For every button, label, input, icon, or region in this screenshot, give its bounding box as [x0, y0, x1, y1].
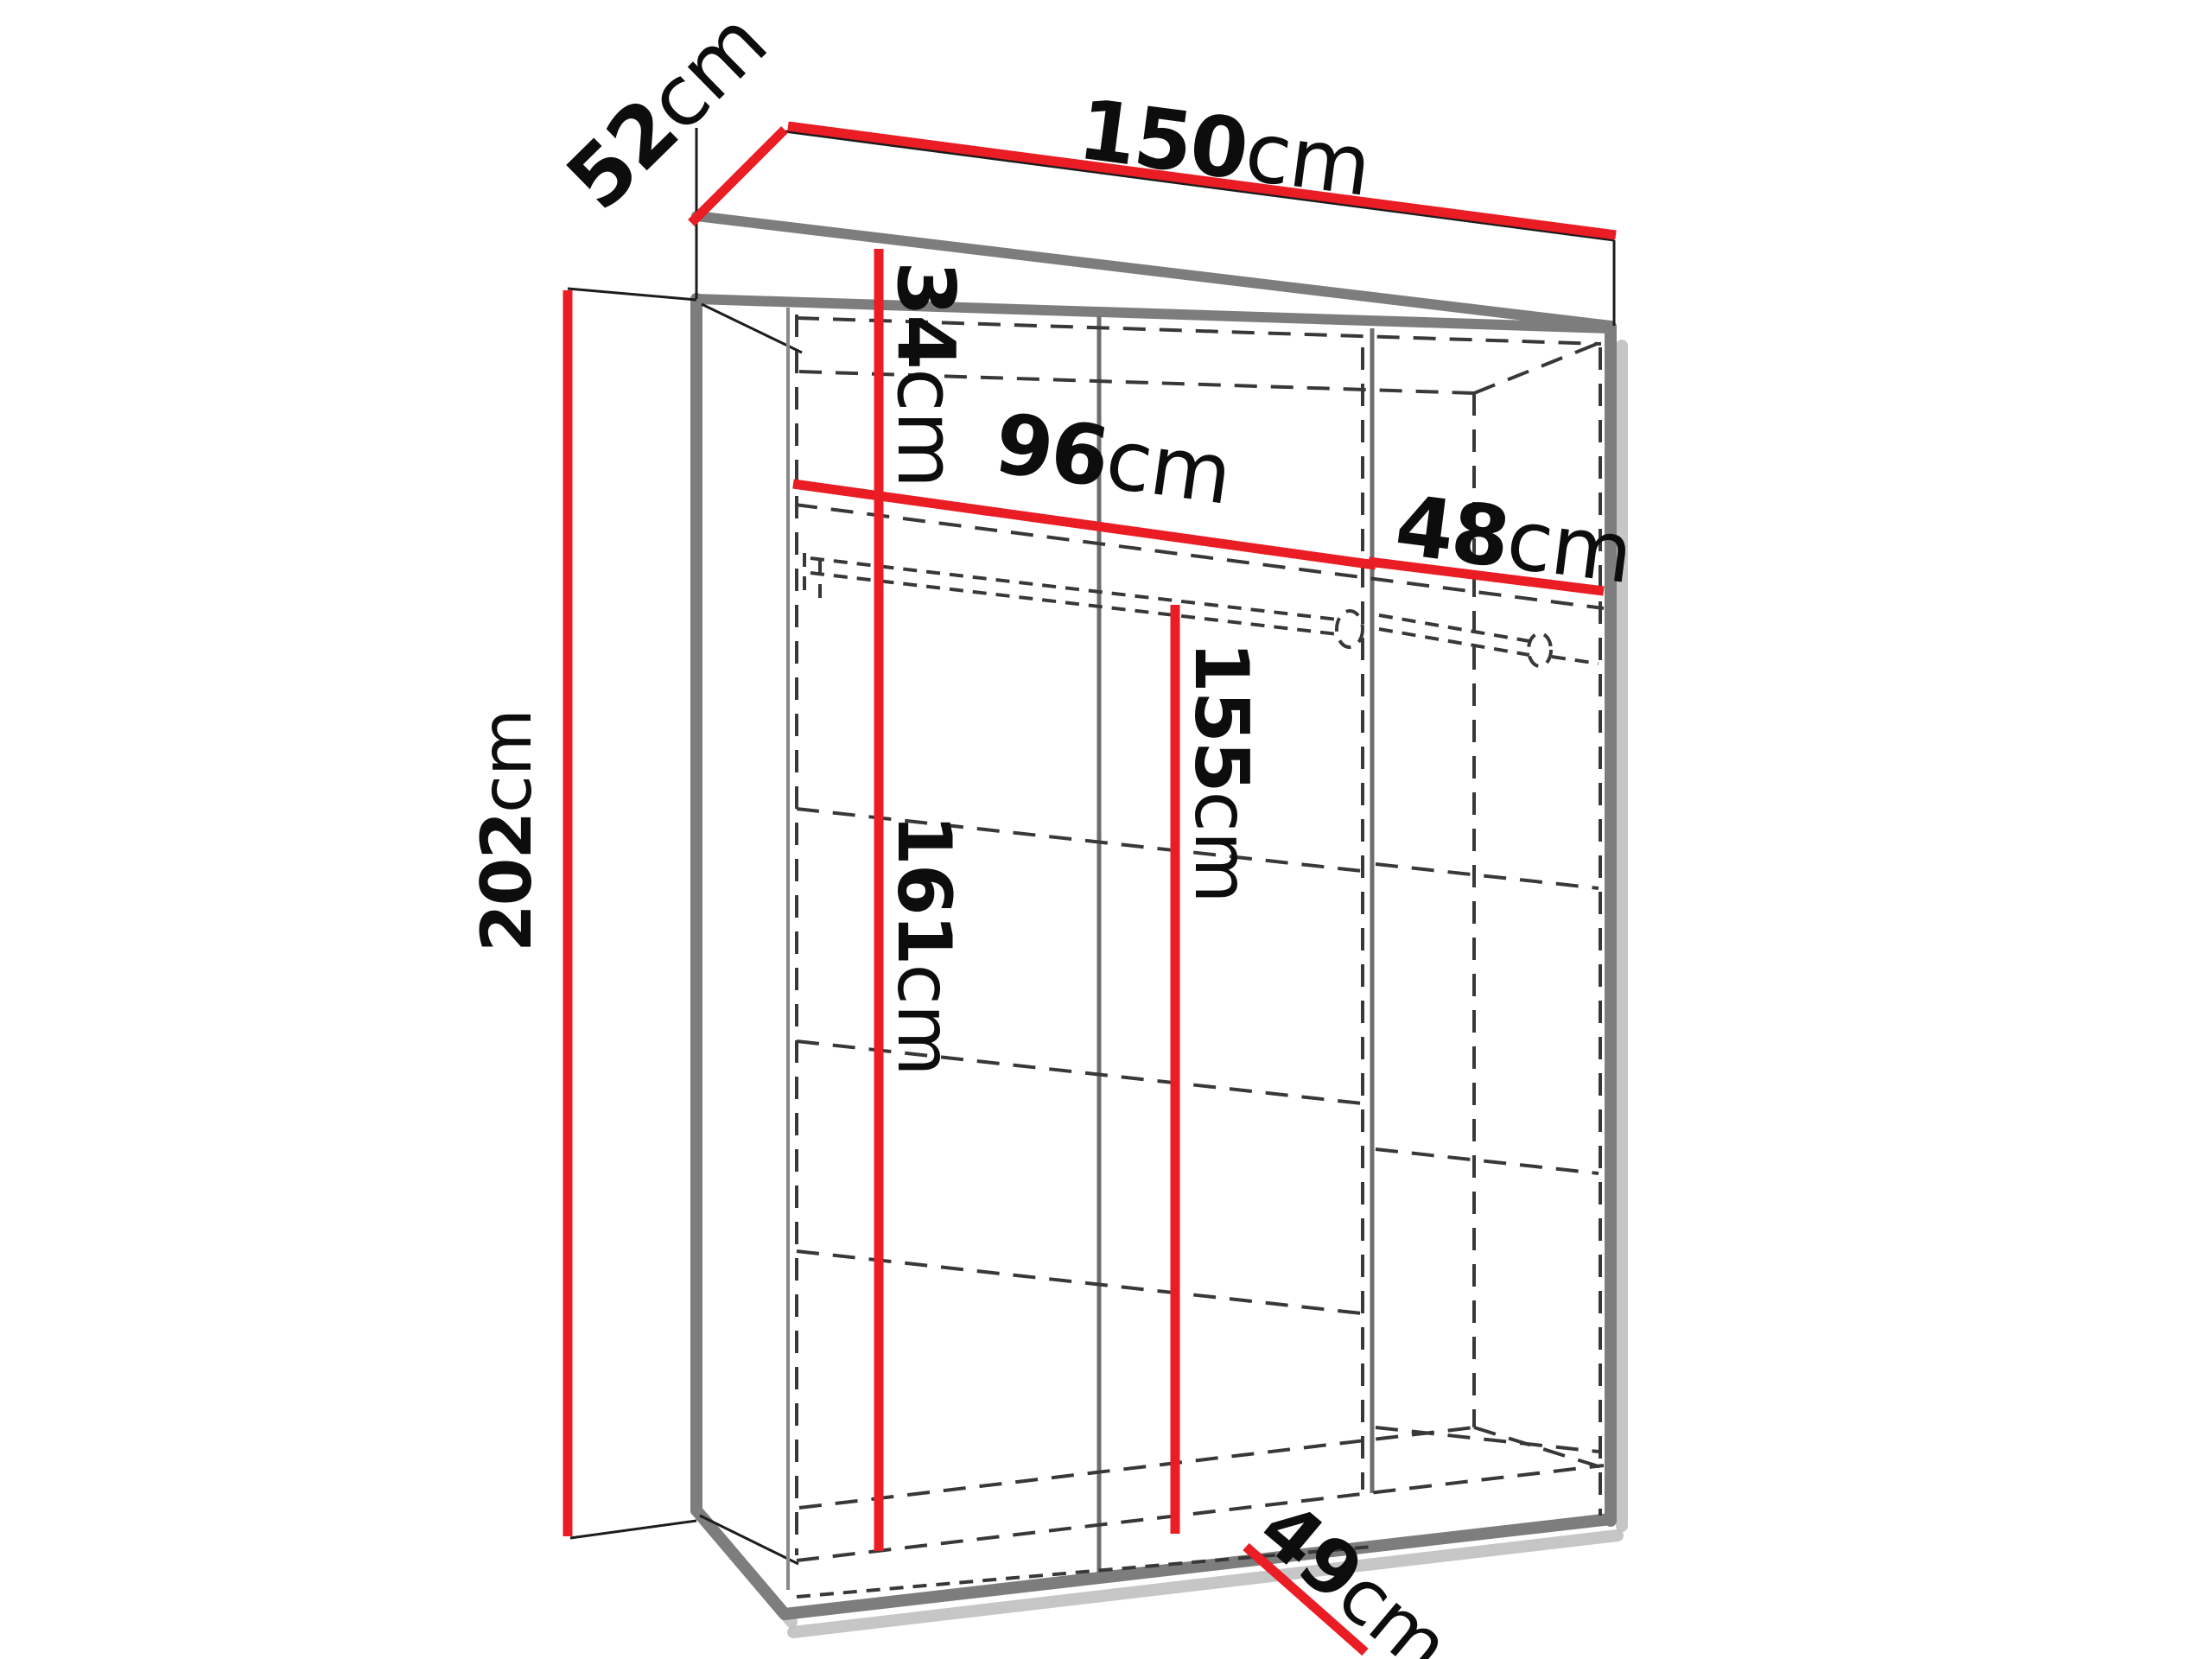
label-upper-shelf-height-value: 34 [880, 261, 972, 368]
dimension-line-top-depth [691, 130, 785, 223]
label-center-interior-height-value: 155 [1178, 641, 1264, 791]
label-right-section-width-value: 48 [1390, 477, 1514, 587]
label-center-interior-height-unit: cm [1178, 791, 1264, 903]
label-left-section-width-unit: cm [1100, 410, 1236, 524]
label-top-depth: 52cm [549, 0, 785, 228]
label-left-interior-height-unit: cm [880, 964, 967, 1076]
rod-end-cap [1337, 611, 1363, 647]
label-center-interior-height: 155cm [1178, 641, 1264, 903]
dimension-lines [568, 126, 1616, 1652]
label-left-section-width: 96cm [989, 395, 1237, 524]
rod-end-cap [1529, 633, 1551, 666]
label-left-section-width-value: 96 [989, 395, 1114, 506]
label-top-width-unit: cm [1240, 103, 1376, 215]
right-hanging-rod [1379, 615, 1599, 666]
label-height-unit: cm [467, 709, 547, 813]
label-left-interior-height: 161cm [880, 814, 967, 1076]
label-top-width-value: 150 [1073, 81, 1252, 199]
diagram-canvas: 150cm 52cm 202cm 34cm 96cm 48cm 161cm 15… [0, 0, 2212, 1659]
label-upper-shelf-height: 34cm [880, 261, 972, 487]
panel-edges [568, 128, 1614, 1564]
label-upper-shelf-height-unit: cm [880, 368, 972, 487]
label-height: 202cm [467, 709, 547, 952]
dimension-labels: 150cm 52cm 202cm 34cm 96cm 48cm 161cm 15… [467, 0, 1637, 1659]
label-height-value: 202 [467, 813, 547, 952]
wardrobe-dimension-diagram: 150cm 52cm 202cm 34cm 96cm 48cm 161cm 15… [0, 0, 2212, 1659]
label-bottom-depth: 49cm [1243, 1484, 1466, 1659]
label-right-section-width-unit: cm [1502, 491, 1637, 602]
label-top-width: 150cm [1073, 81, 1376, 215]
label-left-interior-height-value: 161 [880, 814, 967, 964]
